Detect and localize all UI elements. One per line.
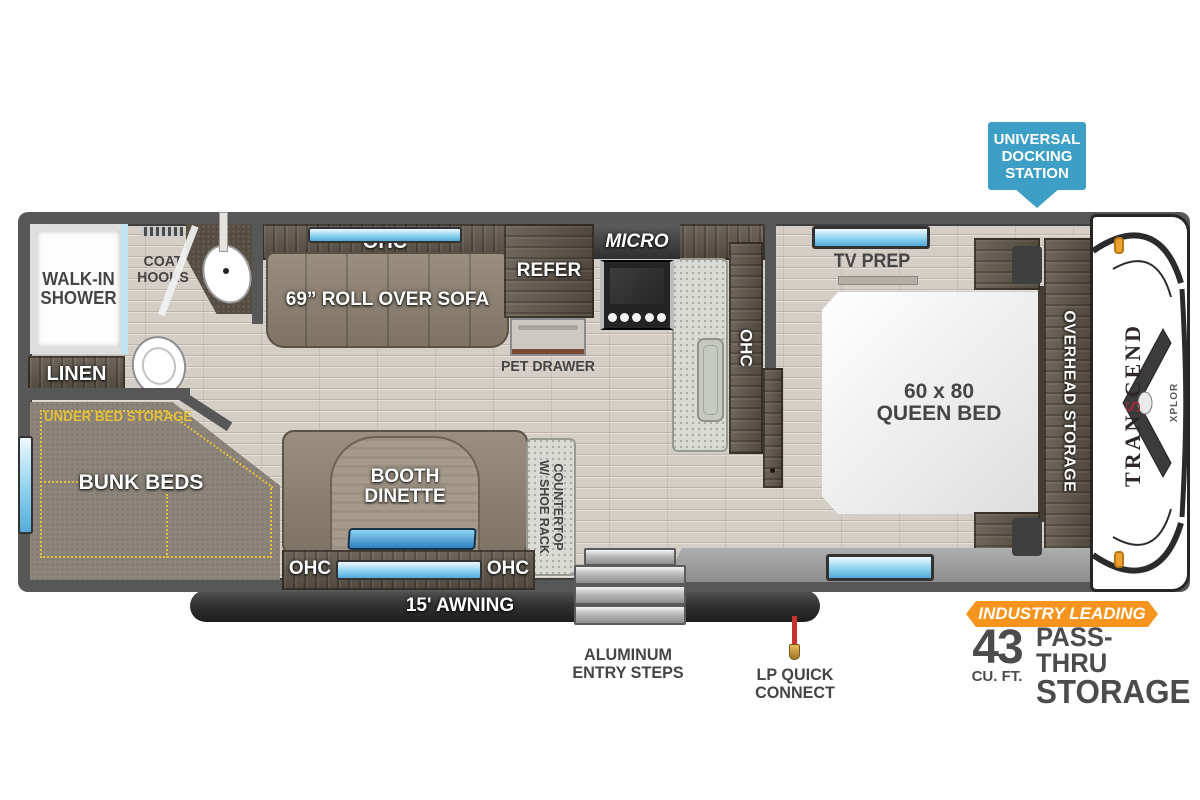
queen-bed-label: 60 x 80QUEEN BED [877,381,1002,425]
pet-drawer-label: PET DRAWER [495,358,600,376]
bath-living-wall [252,212,263,324]
micro-label: MICRO [605,232,668,252]
lp-connector [789,644,800,660]
linen-cabinet: LINEN [28,356,125,392]
coat-hook-strip [141,227,183,236]
floorplan: 15' AWNING WALK-IN SHOWER LINEN COATHOOK… [0,0,1200,800]
sofa-window [308,227,462,243]
shower-glass [121,224,128,354]
sofa-label: 69” ROLL OVER SOFA [286,290,489,310]
entry-steps [574,548,682,628]
stove [600,260,674,330]
brand-sub-logo: XPLOR [1165,357,1185,447]
kitchen-ohc-label: OHC [737,329,755,367]
kitchen-sink [697,338,724,422]
lp-line [792,616,797,644]
bunk-dash-mid-v [166,494,168,558]
entry-steps-label: ALUMINUMENTRY STEPS [554,644,702,684]
tv-prep-label: TV PREP [821,252,923,272]
industry-leading-ribbon: INDUSTRY LEADING [966,601,1158,627]
industry-leading-label: INDUSTRY LEADING [978,604,1146,624]
storage-text: PASS-THRU STORAGE [1036,624,1182,707]
overhead-storage-cabinet: OVERHEAD STORAGE [1044,238,1092,564]
marker-light-bottom [1114,551,1124,568]
roll-over-sofa: 69” ROLL OVER SOFA [266,252,509,348]
pet-drawer [510,318,586,356]
linen-label: LINEN [47,364,107,385]
awning-bar: 15' AWNING [190,590,820,622]
countertop-label: COUNTERTOPW/ SHOE RACK [537,460,565,554]
docking-station-label: UNIVERSAL DOCKING STATION [994,131,1081,182]
docking-station-pointer [1014,188,1060,208]
bunk-dash-right [270,488,272,558]
pillow-bottom [1012,518,1042,556]
stove-burners [606,310,668,324]
refrigerator: REFER [504,224,594,318]
bedroom-top-window [812,226,930,249]
bedroom-door-panel [763,368,783,488]
kitchen-bedroom-wall [765,212,776,370]
bunk-window [18,436,33,534]
shower-label: WALK-IN SHOWER [40,270,116,307]
dinette-ohc-right-label: OHC [482,558,534,580]
refer-label: REFER [517,261,581,281]
marker-light-top [1114,237,1124,254]
brand-logo: TRANSCEND [1105,287,1161,523]
dinette-tabletop [347,528,477,550]
queen-bed: 60 x 80QUEEN BED [822,292,1056,514]
bath-bottom-wall [18,388,190,400]
microwave-cabinet: MICRO [594,224,680,262]
dinette-label: BOOTHDINETTE [364,467,445,507]
dinette-window [336,560,482,580]
tv-shelf [838,276,918,285]
pillow-top [1012,246,1042,284]
walk-in-shower: WALK-IN SHOWER [30,224,127,354]
lp-quick-connect-label: LP QUICKCONNECT [733,664,857,704]
bath-doorway [219,212,228,252]
bunk-dash-left [40,410,42,558]
awning-label: 15' AWNING [300,593,620,619]
bunk-beds-label: BUNK BEDS [66,470,216,496]
storage-number: 43 [960,624,1034,670]
under-bed-storage-label: UNDER BED STORAGE [44,408,196,424]
kitchen-ohc-cabinet: OHC [729,242,763,454]
storage-unit: CU. FT. [960,668,1034,684]
bedroom-bottom-window [826,554,934,581]
dinette-ohc-left-label: OHC [284,558,336,580]
bunk-dash-bottom [40,556,272,558]
docking-station-badge: UNIVERSAL DOCKING STATION [988,122,1086,190]
front-cap: TRANSCEND XPLOR [1090,214,1190,592]
overhead-storage-label: OVERHEAD STORAGE [1060,310,1077,492]
sink-drain [223,268,229,274]
